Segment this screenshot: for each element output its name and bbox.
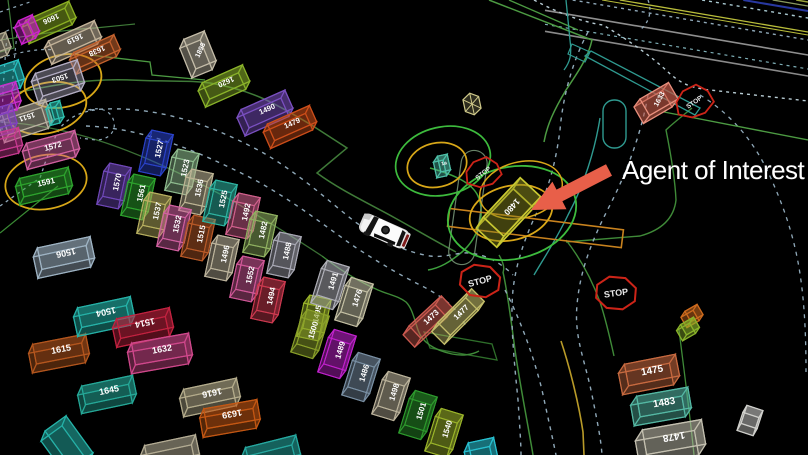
svg-text:Agent of Interest: Agent of Interest bbox=[622, 155, 806, 185]
